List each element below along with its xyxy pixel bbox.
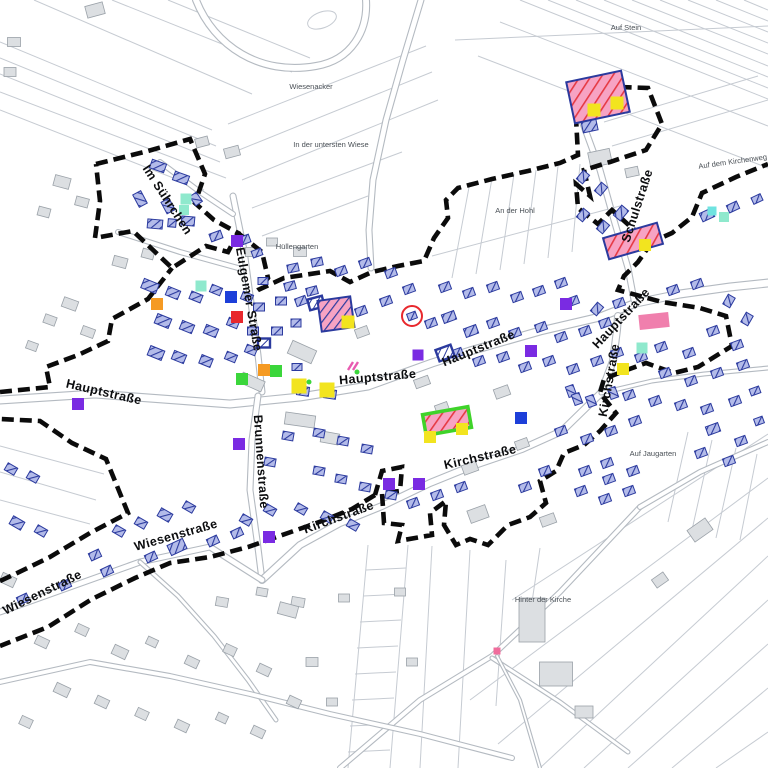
- street-name-label: Eulgemer Straße: [233, 246, 265, 352]
- parcel-line: [390, 545, 408, 768]
- parcel-line: [458, 550, 470, 768]
- field-name-label: Auf Stein: [611, 23, 641, 32]
- protected-building: [706, 325, 719, 336]
- protected-building: [578, 325, 591, 336]
- marker-square: [719, 212, 729, 222]
- protected-building: [628, 415, 641, 426]
- protected-building: [189, 291, 203, 303]
- protected-building: [206, 535, 219, 547]
- protected-building: [542, 355, 555, 366]
- protected-building: [354, 305, 367, 316]
- map-frame: Auf SteinWiesenackerIn der untersten Wie…: [0, 0, 768, 768]
- field-name-label: Hüllengarten: [276, 242, 319, 251]
- parcel-line: [452, 182, 470, 278]
- building: [625, 166, 640, 178]
- parcel-line: [360, 620, 401, 622]
- protected-building: [496, 351, 509, 362]
- field-name-label: Hinter der Kirche: [515, 595, 571, 604]
- protected-building: [154, 314, 172, 329]
- building: [223, 145, 240, 159]
- protected-building: [710, 367, 723, 378]
- parcel-line: [262, 196, 368, 236]
- protected-building: [734, 435, 747, 446]
- protected-building: [741, 312, 753, 326]
- parcel-line: [716, 732, 768, 768]
- building: [145, 636, 158, 648]
- protected-building: [722, 455, 735, 466]
- marker-square: [515, 412, 527, 424]
- protected-building: [518, 481, 531, 492]
- marker-square: [320, 383, 335, 398]
- protected-building: [141, 278, 160, 293]
- building: [75, 623, 90, 636]
- protected-building: [430, 489, 443, 500]
- parcel-line: [612, 100, 768, 146]
- marker-square: [588, 104, 601, 117]
- protected-building: [379, 295, 392, 306]
- protected-building: [34, 525, 48, 537]
- protected-building: [749, 386, 761, 396]
- building: [540, 662, 573, 686]
- parcel-line: [540, 556, 768, 768]
- parcel-line: [660, 0, 768, 43]
- building: [53, 175, 71, 190]
- protected-building: [203, 324, 218, 337]
- protected-building: [438, 281, 451, 292]
- protected-building: [209, 284, 222, 296]
- protected-building: [133, 191, 148, 208]
- building: [284, 412, 315, 428]
- building: [37, 206, 51, 218]
- building: [112, 255, 128, 268]
- marker-slash: [348, 362, 358, 370]
- protected-building: [157, 508, 173, 522]
- street-name-label: Kirchstraße: [443, 442, 518, 472]
- protected-building: [576, 208, 589, 222]
- building: [43, 314, 57, 327]
- marker-square: [413, 478, 425, 490]
- marker-square: [494, 648, 501, 655]
- parcel-line: [348, 750, 390, 752]
- marker-square: [560, 298, 572, 310]
- marker-square: [413, 350, 424, 361]
- protected-building: [313, 466, 325, 476]
- protected-building: [291, 319, 301, 327]
- protected-building: [574, 485, 587, 496]
- pink-solid-building: [638, 312, 669, 330]
- protected-building: [754, 416, 765, 426]
- building: [80, 326, 95, 339]
- parcel-line: [672, 688, 768, 768]
- building: [467, 505, 489, 524]
- marker-square: [342, 316, 355, 329]
- protected-building: [284, 281, 297, 292]
- protected-building: [510, 291, 523, 302]
- marker-square: [196, 281, 207, 292]
- protected-building: [674, 399, 687, 410]
- parcel-line: [548, 0, 768, 88]
- field-name-label: In der untersten Wiese: [293, 140, 368, 149]
- field-name-label: Wiesenacker: [289, 82, 333, 91]
- marker-square: [151, 298, 163, 310]
- parcel-line: [357, 646, 398, 648]
- parcel-line: [524, 170, 536, 264]
- parcel-line: [500, 174, 514, 270]
- field-name-label: Auf dem Kirchenweg: [698, 152, 768, 171]
- protected-building: [306, 286, 319, 297]
- protected-building: [648, 395, 661, 406]
- protected-building: [441, 311, 456, 324]
- parcel-line: [716, 0, 768, 21]
- building: [135, 707, 150, 720]
- protected-building: [147, 219, 163, 229]
- parcel-line: [470, 478, 768, 700]
- protected-building: [518, 361, 531, 372]
- parcel-line: [0, 92, 226, 178]
- parcel-line: [348, 545, 368, 768]
- protected-building: [313, 428, 325, 438]
- marker-square: [639, 239, 651, 251]
- building: [61, 297, 79, 312]
- parcel-line: [668, 432, 688, 522]
- protected-building: [571, 392, 582, 405]
- building: [25, 340, 38, 351]
- marker-square: [525, 345, 537, 357]
- building: [256, 663, 272, 677]
- protected-building: [602, 473, 615, 484]
- building: [19, 715, 34, 728]
- protected-building: [580, 433, 593, 444]
- building: [184, 655, 200, 669]
- building: [519, 598, 545, 642]
- marker-square: [424, 431, 436, 443]
- building: [256, 587, 268, 597]
- protected-building: [294, 295, 307, 306]
- protected-building: [282, 431, 294, 441]
- building: [34, 635, 50, 649]
- protected-building: [272, 327, 283, 335]
- building: [651, 572, 668, 588]
- building: [354, 326, 369, 339]
- building: [539, 513, 557, 528]
- protected-building: [728, 395, 741, 406]
- building: [111, 644, 129, 659]
- protected-building: [730, 339, 743, 350]
- protected-building: [682, 347, 695, 358]
- protected-building: [172, 171, 189, 185]
- building: [53, 682, 71, 697]
- protected-building: [179, 320, 194, 333]
- protected-building: [9, 516, 25, 530]
- traffic-island: [305, 7, 339, 32]
- protected-building: [626, 465, 639, 476]
- road-surface: [0, 662, 512, 758]
- protected-building: [171, 350, 186, 363]
- building: [8, 38, 21, 47]
- parcel-line: [496, 560, 506, 706]
- street-name-label: Kirchstraße: [596, 343, 623, 418]
- navy-outlined-buildings: [258, 296, 455, 362]
- protected-building: [454, 481, 467, 492]
- building: [85, 2, 105, 18]
- building: [575, 706, 593, 718]
- protected-building: [294, 503, 308, 515]
- protected-building: [199, 355, 213, 368]
- marker-square: [637, 343, 648, 354]
- protected-building: [424, 317, 437, 328]
- building: [250, 725, 266, 739]
- parcel-line: [576, 0, 768, 77]
- protected-building: [230, 527, 243, 539]
- protected-building: [276, 297, 287, 305]
- protected-building: [292, 364, 302, 371]
- protected-building: [182, 501, 196, 513]
- parcel-line: [0, 472, 96, 500]
- marker-square: [383, 478, 395, 490]
- marker-square: [456, 423, 468, 435]
- building: [223, 643, 238, 656]
- field-name-label: Auf Jaugarten: [630, 449, 677, 458]
- building: [339, 594, 350, 602]
- protected-building: [486, 317, 499, 328]
- protected-building: [554, 425, 567, 436]
- protected-building: [578, 465, 591, 476]
- building: [407, 658, 418, 666]
- protected-building: [654, 341, 667, 352]
- protected-building: [311, 257, 323, 267]
- protected-building: [463, 325, 478, 338]
- building: [94, 695, 110, 709]
- protected-building: [622, 485, 635, 496]
- field-name-label: An der Hohl: [495, 206, 535, 215]
- protected-building: [385, 490, 397, 500]
- building: [174, 719, 190, 733]
- conservation-boundary: [0, 86, 768, 646]
- protected-building: [258, 278, 268, 285]
- marker-square: [225, 291, 237, 303]
- building: [395, 588, 406, 596]
- marker-square: [72, 398, 84, 410]
- marker-square: [270, 365, 282, 377]
- parcel-line: [548, 166, 558, 258]
- protected-building: [622, 389, 635, 400]
- road-casing: [0, 662, 512, 758]
- protected-building: [147, 346, 165, 361]
- protected-building: [486, 281, 499, 292]
- marker-square: [292, 379, 307, 394]
- protected-building: [406, 497, 419, 508]
- protected-building: [88, 549, 101, 561]
- building: [306, 658, 318, 667]
- protected-building: [726, 201, 739, 213]
- parcel-line: [355, 672, 396, 674]
- marker-square: [263, 531, 275, 543]
- marker-square: [231, 235, 243, 247]
- building: [215, 712, 228, 724]
- village-preservation-map: Auf SteinWiesenackerIn der untersten Wie…: [0, 0, 768, 768]
- marker-square: [181, 194, 192, 205]
- protected-building: [566, 363, 579, 374]
- protected-building: [590, 355, 603, 366]
- protected-building: [532, 285, 545, 296]
- protected-building: [600, 457, 613, 468]
- protected-building: [402, 283, 415, 294]
- protected-building: [700, 403, 713, 414]
- marker-square: [236, 373, 248, 385]
- marker-square: [258, 364, 270, 376]
- marker-dot: [307, 380, 312, 385]
- protected-building: [209, 230, 223, 242]
- protected-building: [361, 444, 373, 454]
- protected-building: [751, 194, 763, 205]
- protected-building: [165, 286, 180, 299]
- protected-building: [224, 351, 237, 363]
- building: [215, 597, 228, 608]
- protected-building: [334, 265, 347, 276]
- parcel-line: [34, 0, 252, 94]
- marker-square: [231, 311, 243, 323]
- protected-building: [287, 263, 299, 273]
- protected-building: [723, 294, 735, 308]
- protected-building: [337, 436, 349, 446]
- building: [4, 68, 16, 77]
- protected-building: [554, 331, 567, 342]
- protected-building: [462, 287, 475, 298]
- marker-square: [233, 438, 245, 450]
- protected-building: [359, 482, 371, 492]
- building: [327, 698, 338, 706]
- building: [493, 385, 511, 400]
- protected-building: [598, 493, 611, 504]
- protected-building: [554, 277, 567, 288]
- parcel-line: [744, 0, 768, 10]
- protected-building: [335, 474, 347, 484]
- marker-square: [708, 207, 717, 216]
- protected-building: [134, 517, 148, 529]
- protected-building: [705, 423, 720, 436]
- parcel-line: [476, 178, 492, 274]
- protected-building: [26, 471, 40, 483]
- road-casing: [369, 0, 421, 268]
- road-surface: [369, 0, 421, 268]
- parcel-line: [366, 568, 406, 570]
- protected-building: [694, 447, 707, 458]
- boundary-dashed-line: [0, 419, 128, 581]
- protected-building: [112, 525, 126, 537]
- building: [287, 340, 316, 363]
- parcel-line: [532, 548, 540, 602]
- protected-building: [407, 311, 418, 321]
- building: [75, 196, 90, 208]
- marker-square: [611, 97, 624, 110]
- parcel-line: [352, 698, 394, 700]
